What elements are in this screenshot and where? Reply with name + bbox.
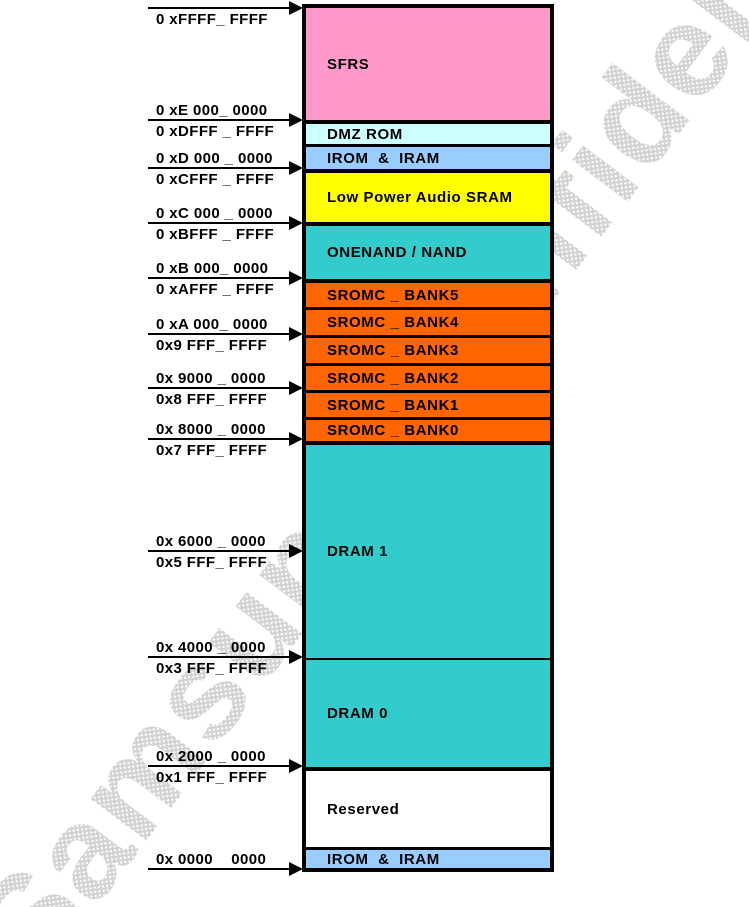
arrow-head-icon xyxy=(289,381,303,395)
address-label-below: 0 xFFFF_ FFFF xyxy=(156,11,268,28)
memory-block-label: DRAM 0 xyxy=(306,705,388,722)
arrow-line xyxy=(148,765,290,767)
arrow-line xyxy=(148,167,290,169)
memory-block-label: IROM & IRAM xyxy=(306,150,440,167)
address-label-above: 0x 9000 _ 0000 xyxy=(156,370,266,387)
memory-block: IROM & IRAM xyxy=(306,144,550,169)
memory-block-label: Low Power Audio SRAM xyxy=(306,189,513,206)
arrow-head-icon xyxy=(289,216,303,230)
address-label-below: 0x9 FFF_ FFFF xyxy=(156,337,267,354)
address-label-below: 0x3 FFF_ FFFF xyxy=(156,660,267,677)
memory-block: DMZ ROM xyxy=(306,120,550,144)
arrow-line xyxy=(148,550,290,552)
address-label-above: 0 xC 000 _ 0000 xyxy=(156,205,273,222)
memory-block: SROMC _ BANK0 xyxy=(306,417,550,441)
arrow-line xyxy=(148,868,290,870)
address-label-below: 0x7 FFF_ FFFF xyxy=(156,442,267,459)
arrow-line xyxy=(148,277,290,279)
memory-block: DRAM 1 xyxy=(306,441,550,658)
arrow-line xyxy=(148,438,290,440)
arrow-line xyxy=(148,7,290,9)
memory-block: SROMC _ BANK4 xyxy=(306,307,550,335)
address-label-below: 0 xDFFF _ FFFF xyxy=(156,123,274,140)
address-label-below: 0x1 FFF_ FFFF xyxy=(156,769,267,786)
memory-block-label: ONENAND / NAND xyxy=(306,244,467,261)
arrow-head-icon xyxy=(289,271,303,285)
memory-block: SROMC _ BANK3 xyxy=(306,335,550,363)
address-label-below: 0x8 FFF_ FFFF xyxy=(156,391,267,408)
memory-block-label: SROMC _ BANK3 xyxy=(306,342,459,359)
address-label-below: 0x5 FFF_ FFFF xyxy=(156,554,267,571)
memory-block: SROMC _ BANK1 xyxy=(306,390,550,417)
memory-block-label: Reserved xyxy=(306,801,399,818)
address-label-above: 0x 2000 _ 0000 xyxy=(156,748,266,765)
arrow-head-icon xyxy=(289,432,303,446)
address-label-above: 0x 6000 _ 0000 xyxy=(156,533,266,550)
arrow-line xyxy=(148,333,290,335)
memory-block-label: DRAM 1 xyxy=(306,543,388,560)
memory-block-label: DMZ ROM xyxy=(306,126,403,143)
arrow-head-icon xyxy=(289,759,303,773)
arrow-line xyxy=(148,387,290,389)
memory-block: ONENAND / NAND xyxy=(306,222,550,279)
memory-block: DRAM 0 xyxy=(306,658,550,767)
arrow-line xyxy=(148,222,290,224)
arrow-head-icon xyxy=(289,1,303,15)
arrow-head-icon xyxy=(289,327,303,341)
address-label-above: 0x 0000 0000 xyxy=(156,851,266,868)
address-label-above: 0 xD 000 _ 0000 xyxy=(156,150,273,167)
address-label-above: 0 xA 000_ 0000 xyxy=(156,316,268,333)
memory-block: Reserved xyxy=(306,767,550,847)
address-label-below: 0 xCFFF _ FFFF xyxy=(156,171,274,188)
memory-column: SFRSDMZ ROMIROM & IRAMLow Power Audio SR… xyxy=(302,4,554,872)
memory-map-figure: Samsung Confidential SFRSDMZ ROMIROM & I… xyxy=(0,0,749,907)
arrow-head-icon xyxy=(289,544,303,558)
memory-block: IROM & IRAM xyxy=(306,847,550,868)
memory-block-label: SFRS xyxy=(306,56,369,73)
arrow-line xyxy=(148,119,290,121)
memory-block: SFRS xyxy=(306,8,550,120)
memory-block-label: SROMC _ BANK1 xyxy=(306,397,459,414)
memory-block-label: SROMC _ BANK5 xyxy=(306,287,459,304)
memory-block-label: SROMC _ BANK4 xyxy=(306,314,459,331)
address-label-below: 0 xBFFF _ FFFF xyxy=(156,226,274,243)
arrow-head-icon xyxy=(289,161,303,175)
memory-block: Low Power Audio SRAM xyxy=(306,169,550,222)
address-label-above: 0x 8000 _ 0000 xyxy=(156,421,266,438)
memory-block: SROMC _ BANK5 xyxy=(306,279,550,307)
address-label-above: 0 xB 000_ 0000 xyxy=(156,260,268,277)
arrow-head-icon xyxy=(289,862,303,876)
arrow-head-icon xyxy=(289,650,303,664)
memory-block-label: IROM & IRAM xyxy=(306,851,440,868)
address-label-above: 0 xE 000_ 0000 xyxy=(156,102,268,119)
memory-block-label: SROMC _ BANK2 xyxy=(306,370,459,387)
address-label-above: 0x 4000 _ 0000 xyxy=(156,639,266,656)
arrow-line xyxy=(148,656,290,658)
address-label-below: 0 xAFFF _ FFFF xyxy=(156,281,274,298)
memory-block: SROMC _ BANK2 xyxy=(306,363,550,390)
arrow-head-icon xyxy=(289,113,303,127)
memory-block-label: SROMC _ BANK0 xyxy=(306,422,459,439)
